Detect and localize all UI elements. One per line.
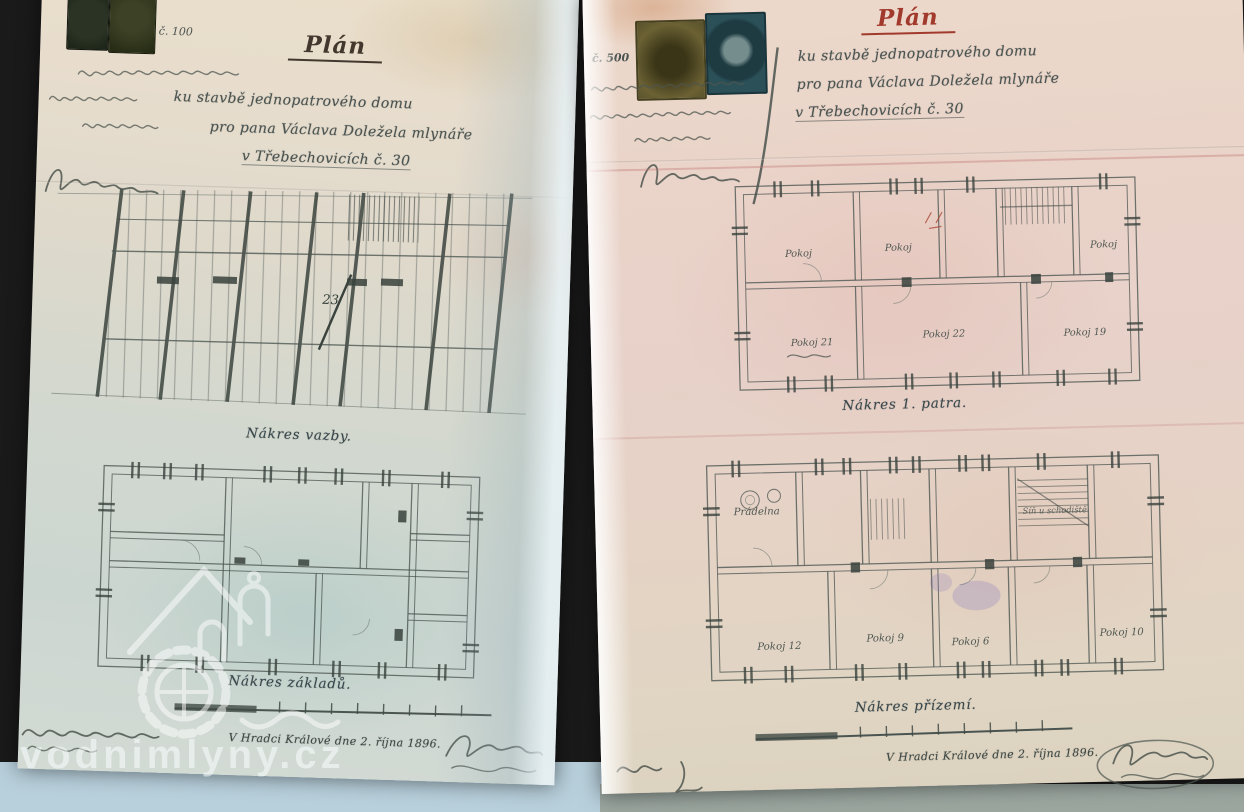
door-arc [893, 285, 911, 303]
first-floor-plan-drawing: Pokoj Pokoj Pokoj Pokoj 21 Pokoj 22 Poko… [690, 162, 1186, 406]
room-label: Pokoj 21 [790, 337, 834, 349]
room-label: Pokoj 22 [922, 328, 966, 340]
door-arc [1036, 282, 1052, 298]
paper-crease [593, 422, 1244, 440]
room-label: Prádelna [732, 505, 779, 518]
handwritten-note [632, 127, 733, 151]
kettle-mark [767, 489, 780, 502]
revenue-stamp-icon [705, 12, 768, 95]
truss-number: 23 [321, 293, 339, 309]
vodnimlyny-logo-icon [122, 552, 342, 742]
room-label: Pokoj 19 [1063, 327, 1107, 339]
room-label: Pokoj 6 [951, 636, 990, 648]
chimney-marks [851, 557, 1083, 573]
revenue-stamp-icon [66, 0, 110, 51]
signature [39, 157, 170, 207]
diagonal-strut [319, 274, 351, 351]
subtitle-line: v Třebechovicích č. 30 [242, 148, 411, 170]
subtitle-line: pro pana Václava Doležela mlynáře [210, 119, 473, 143]
roof-truss-drawing: 23 [81, 170, 534, 432]
room-label: Pokoj 12 [756, 641, 801, 653]
drawing-caption: Nákres 1. patra. [842, 395, 967, 414]
chimney-marks [902, 272, 1114, 287]
handwritten-note [788, 354, 831, 358]
stair-hatch [999, 187, 1072, 225]
subtitle-line: pro pana Václava Doležela mlynáře [796, 71, 1059, 93]
drawing-caption: Nákres přízemí. [855, 697, 977, 716]
subtitle-line: ku stavbě jednopatrového domu [798, 43, 1038, 65]
rafter-field [97, 181, 512, 414]
paper-crease [36, 181, 573, 200]
drawing-caption: Nákres vazby. [246, 425, 352, 444]
kettle-mark [741, 491, 760, 510]
door-arc [803, 263, 821, 281]
room-label: Pokoj 9 [865, 633, 904, 645]
handwritten-note [46, 85, 167, 113]
door-arc [353, 618, 370, 635]
date-line: V Hradci Králové dne 2. října 1896. [886, 746, 1099, 764]
scale-note: č. 100 [159, 24, 194, 38]
door-arc [959, 568, 976, 585]
kettle-mark [745, 495, 754, 504]
handwritten-note [79, 114, 170, 139]
watermark-text: vodnimlyny.cz [20, 733, 345, 778]
window-ticks [731, 172, 1145, 393]
ground-floor-plan-drawing: Prádelna Síň u schodiště Pokoj 12 Pokoj … [673, 437, 1199, 700]
room-label: Pokoj [1089, 239, 1117, 251]
photo-of-plans: č. 100 Plán ku stavbě jednopatrového dom… [0, 0, 1244, 812]
room-label: Pokoj [884, 242, 912, 254]
scale-bar [750, 716, 1080, 748]
subtitle-line: v Třebechovicích č. 30 [795, 101, 964, 122]
truss-posts [97, 181, 512, 414]
stair-hatch [870, 498, 904, 540]
door-arc [753, 548, 772, 567]
page-title: Plán [861, 3, 955, 35]
handwritten-note [587, 99, 783, 128]
handwritten-note [74, 60, 285, 93]
door-arc [1033, 566, 1050, 583]
ink-smudge [952, 580, 1001, 611]
revenue-stamp-icon [108, 0, 157, 54]
plan-sheet-right: č. 500 Plán ku stavbě jednopatrového dom… [582, 0, 1244, 794]
scale-note: č. 500 [592, 51, 630, 65]
red-marks [925, 212, 942, 228]
door-arc [869, 570, 888, 589]
handwritten-note [588, 71, 789, 100]
room-label: Pokoj 10 [1099, 627, 1145, 639]
pen-slash-mark [744, 45, 788, 206]
room-label: Síň u schodiště [1022, 504, 1087, 516]
hatched-bay [344, 194, 419, 242]
ink-smudge [930, 573, 953, 592]
handwritten-note [611, 745, 792, 799]
purlin-marks [157, 272, 403, 292]
signature [1090, 723, 1222, 796]
paper-crease [587, 154, 1244, 172]
signature [634, 148, 755, 203]
window-ticks [702, 450, 1168, 684]
stair-hatch [1017, 477, 1089, 528]
subtitle-line: ku stavbě jednopatrového domu [173, 89, 413, 113]
page-title: Plán [288, 31, 383, 64]
paper-crease [586, 146, 1244, 164]
revenue-stamp-icon [635, 19, 707, 101]
room-label: Pokoj [784, 248, 812, 260]
signature [437, 722, 549, 781]
